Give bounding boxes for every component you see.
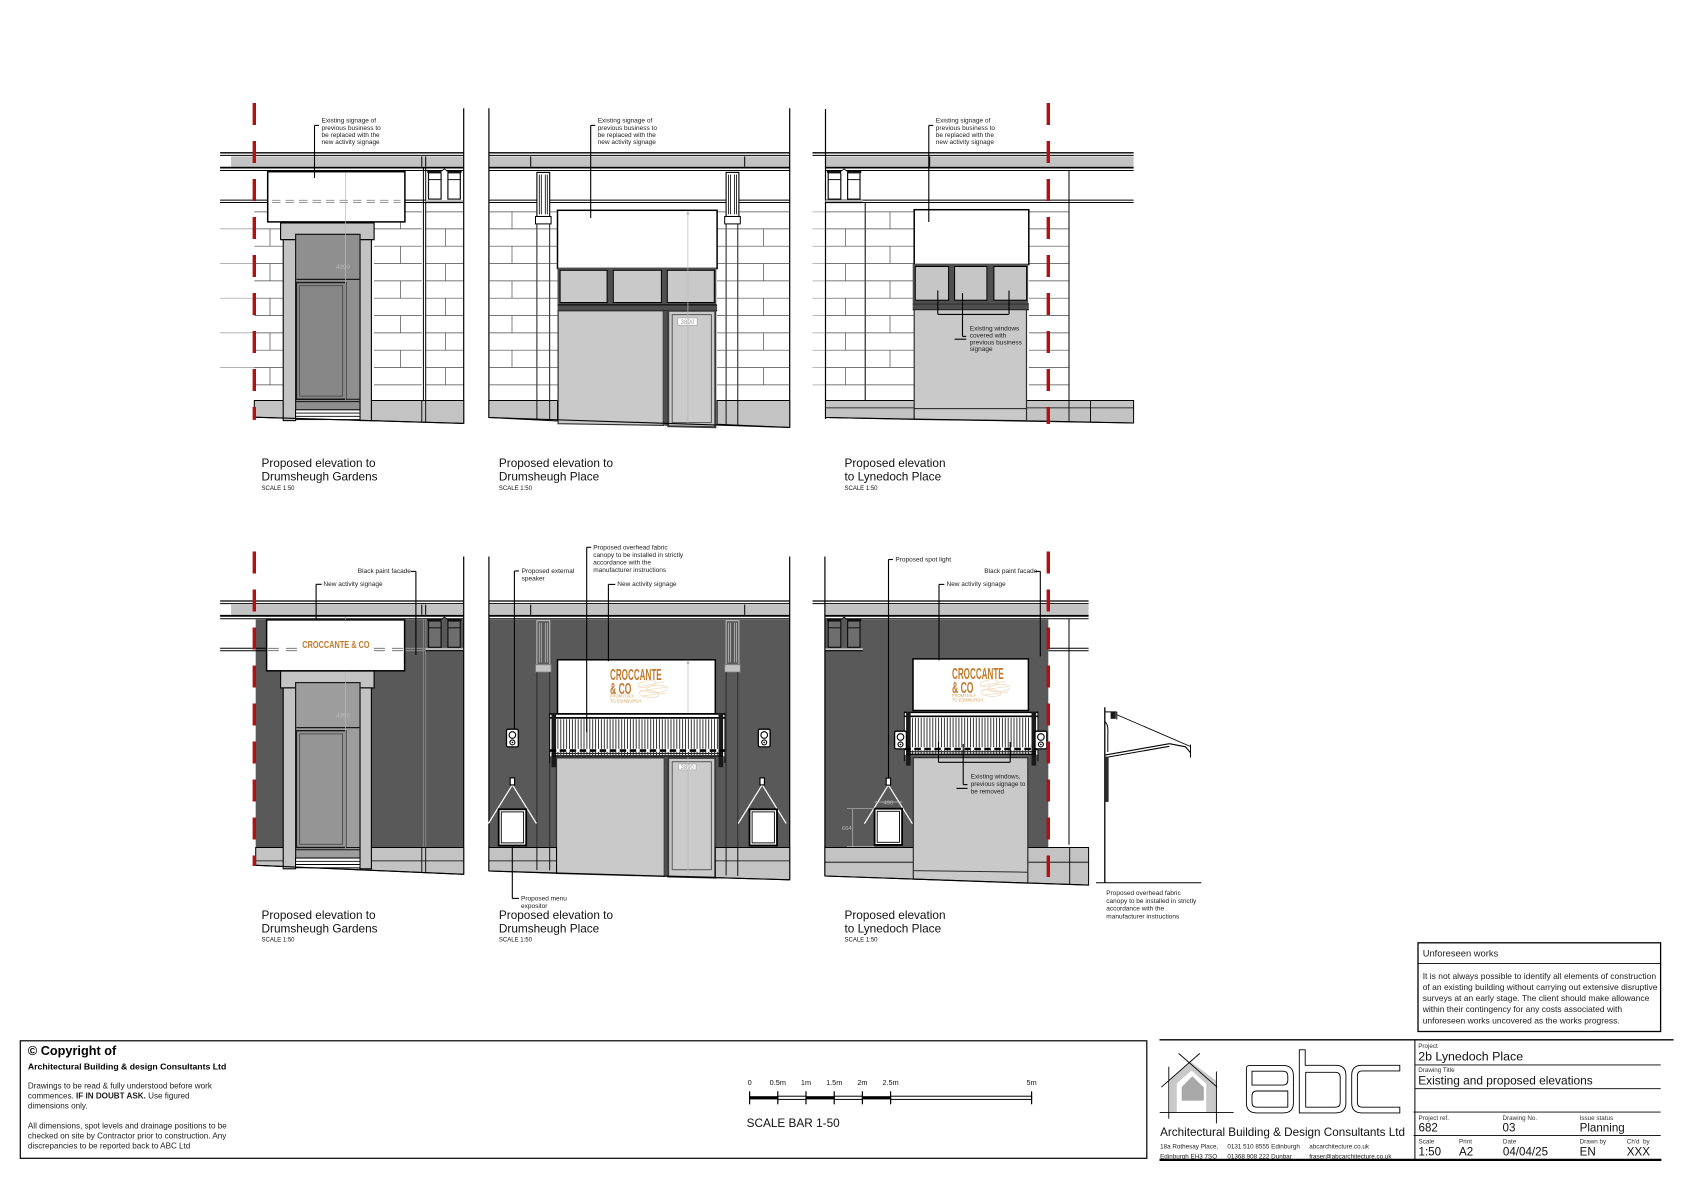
svg-text:© Copyright of: © Copyright of (28, 1044, 117, 1058)
svg-text:Proposed menu: Proposed menu (521, 896, 567, 903)
svg-text:0: 0 (748, 1078, 752, 1087)
svg-text:Proposed elevation to: Proposed elevation to (499, 456, 614, 470)
svg-text:manufacturer instructions: manufacturer instructions (1106, 914, 1180, 921)
svg-text:discrepancies to be reported b: discrepancies to be reported back to ABC… (28, 1141, 190, 1150)
svg-text:unforeseen works uncovered as: unforeseen works uncovered as the works … (1423, 1015, 1620, 1025)
svg-text:01368 908 222 Dunbar: 01368 908 222 Dunbar (1227, 1154, 1291, 1161)
svg-text:Proposed overhead fabric: Proposed overhead fabric (593, 545, 668, 552)
svg-text:2b Lynedoch Place: 2b Lynedoch Place (1418, 1050, 1523, 1064)
svg-text:Proposed external: Proposed external (522, 568, 575, 575)
svg-text:previous business to: previous business to (322, 125, 382, 132)
svg-text:A2: A2 (1459, 1145, 1473, 1158)
svg-text:490: 490 (884, 801, 894, 807)
svg-text:be replaced with the: be replaced with the (322, 132, 381, 139)
svg-text:Edinburgh EH3 7SQ: Edinburgh EH3 7SQ (1160, 1154, 1217, 1161)
svg-text:Proposed elevation: Proposed elevation (845, 908, 946, 922)
svg-text:of an existing building withou: of an existing building without carrying… (1423, 982, 1658, 992)
svg-text:CROCCANTE & CO: CROCCANTE & CO (302, 640, 369, 651)
svg-text:TO EDINBURGH: TO EDINBURGH (610, 698, 641, 703)
svg-text:checked on site by Contractor: checked on site by Contractor prior to c… (28, 1131, 227, 1140)
svg-text:4390: 4390 (336, 712, 351, 719)
svg-text:new activity signage: new activity signage (936, 139, 995, 146)
svg-text:1.5m: 1.5m (826, 1078, 842, 1087)
svg-text:new activity signage: new activity signage (598, 139, 657, 146)
svg-text:Proposed elevation to: Proposed elevation to (499, 908, 614, 922)
svg-text:3890: 3890 (681, 765, 695, 771)
svg-text:accordance with the: accordance with the (1106, 906, 1164, 913)
svg-text:Proposed spot light: Proposed spot light (895, 556, 951, 563)
svg-text:new activity signage: new activity signage (322, 139, 381, 146)
svg-text:to Lynedoch Place: to Lynedoch Place (845, 470, 942, 484)
svg-text:Existing signage of: Existing signage of (322, 118, 377, 125)
svg-text:EN: EN (1580, 1145, 1596, 1158)
svg-text:All dimensions, spot levels an: All dimensions, spot levels and drainage… (28, 1121, 227, 1130)
svg-text:signage: signage (970, 346, 993, 353)
svg-text:4390: 4390 (336, 264, 351, 271)
svg-text:fraser@abcarchitecture.co.uk: fraser@abcarchitecture.co.uk (1309, 1154, 1392, 1161)
svg-text:XXX: XXX (1627, 1145, 1650, 1158)
svg-text:speaker: speaker (522, 575, 546, 582)
svg-text:It is not always possible to i: It is not always possible to identify al… (1423, 971, 1657, 981)
svg-text:18a Rothesay Place,: 18a Rothesay Place, (1160, 1143, 1218, 1150)
svg-text:2.5m: 2.5m (882, 1078, 898, 1087)
svg-text:within their contingency for a: within their contingency for any costs a… (1422, 1004, 1623, 1014)
svg-text:5m: 5m (1027, 1078, 1037, 1087)
svg-text:Black paint facade: Black paint facade (358, 568, 412, 575)
svg-text:1m: 1m (801, 1078, 811, 1087)
svg-text:SCALE 1:50: SCALE 1:50 (499, 486, 533, 492)
svg-text:Architectural Building & desig: Architectural Building & design Consulta… (28, 1061, 226, 1071)
svg-text:to Lynedoch Place: to Lynedoch Place (845, 921, 942, 935)
svg-text:SCALE 1:50: SCALE 1:50 (845, 486, 879, 492)
svg-text:Drumsheugh Place: Drumsheugh Place (499, 921, 600, 935)
svg-text:664: 664 (842, 826, 852, 832)
svg-text:03: 03 (1503, 1122, 1516, 1135)
svg-text:be removed: be removed (971, 789, 1005, 796)
svg-text:surveys at an early stage. The: surveys at an early stage. The client sh… (1423, 993, 1650, 1003)
svg-text:2m: 2m (857, 1078, 867, 1087)
svg-text:Proposed elevation to: Proposed elevation to (262, 456, 377, 470)
svg-text:SCALE BAR 1-50: SCALE BAR 1-50 (747, 1116, 841, 1130)
svg-text:SCALE 1:50: SCALE 1:50 (499, 938, 533, 944)
svg-text:canopy to be installed in stri: canopy to be installed in strictly (1106, 898, 1197, 905)
svg-text:previous business to: previous business to (936, 125, 996, 132)
svg-text:manufacturer instructions: manufacturer instructions (593, 567, 667, 574)
svg-text:TO EDINBURGH: TO EDINBURGH (952, 697, 983, 702)
svg-text:1:50: 1:50 (1419, 1145, 1442, 1158)
svg-text:commences. IF IN DOUBT ASK. U: commences. IF IN DOUBT ASK. Use figured (28, 1092, 190, 1101)
svg-text:Unforeseen works: Unforeseen works (1423, 948, 1499, 959)
svg-text:New activity signage: New activity signage (617, 581, 677, 588)
svg-text:previous signage to: previous signage to (971, 781, 1026, 788)
svg-text:Existing and proposed elevatio: Existing and proposed elevations (1418, 1074, 1593, 1088)
svg-text:canopy to be installed in stri: canopy to be installed in strictly (593, 552, 684, 559)
svg-text:abcarchitecture.co.uk: abcarchitecture.co.uk (1309, 1143, 1370, 1150)
svg-text:Drumsheugh Gardens: Drumsheugh Gardens (262, 470, 378, 484)
svg-text:04/04/25: 04/04/25 (1503, 1145, 1548, 1158)
svg-text:New activity signage: New activity signage (947, 581, 1007, 588)
svg-text:Existing windows,: Existing windows, (971, 774, 1021, 781)
svg-text:0.5m: 0.5m (770, 1078, 786, 1087)
svg-text:Existing signage of: Existing signage of (598, 118, 653, 125)
svg-text:SCALE 1:50: SCALE 1:50 (262, 486, 296, 492)
svg-text:be replaced with the: be replaced with the (936, 132, 995, 139)
svg-text:New activity signage: New activity signage (323, 581, 383, 588)
svg-text:be replaced with the: be replaced with the (598, 132, 657, 139)
svg-text:accordance with the: accordance with the (593, 560, 651, 567)
svg-text:Existing signage of: Existing signage of (936, 118, 991, 125)
svg-text:SCALE 1:50: SCALE 1:50 (262, 938, 296, 944)
svg-text:Proposed elevation: Proposed elevation (845, 456, 946, 470)
svg-text:Architectural Building & Desig: Architectural Building & Design Consulta… (1160, 1126, 1405, 1139)
svg-text:Black paint facade: Black paint facade (984, 568, 1038, 575)
svg-text:Planning: Planning (1580, 1122, 1625, 1135)
svg-text:Proposed overhead fabric: Proposed overhead fabric (1106, 890, 1181, 897)
svg-text:Proposed elevation to: Proposed elevation to (262, 908, 377, 922)
svg-text:Drumsheugh Gardens: Drumsheugh Gardens (262, 921, 378, 935)
svg-text:682: 682 (1419, 1122, 1438, 1135)
svg-text:SCALE 1:50: SCALE 1:50 (845, 938, 879, 944)
svg-text:previous business to: previous business to (598, 125, 658, 132)
svg-text:Drumsheugh Place: Drumsheugh Place (499, 470, 600, 484)
svg-text:dimensions only.: dimensions only. (28, 1102, 88, 1111)
svg-text:0131 510 8555 Edinburgh: 0131 510 8555 Edinburgh (1227, 1143, 1300, 1150)
svg-text:Drawings to be read & fully un: Drawings to be read & fully understood b… (28, 1082, 213, 1091)
